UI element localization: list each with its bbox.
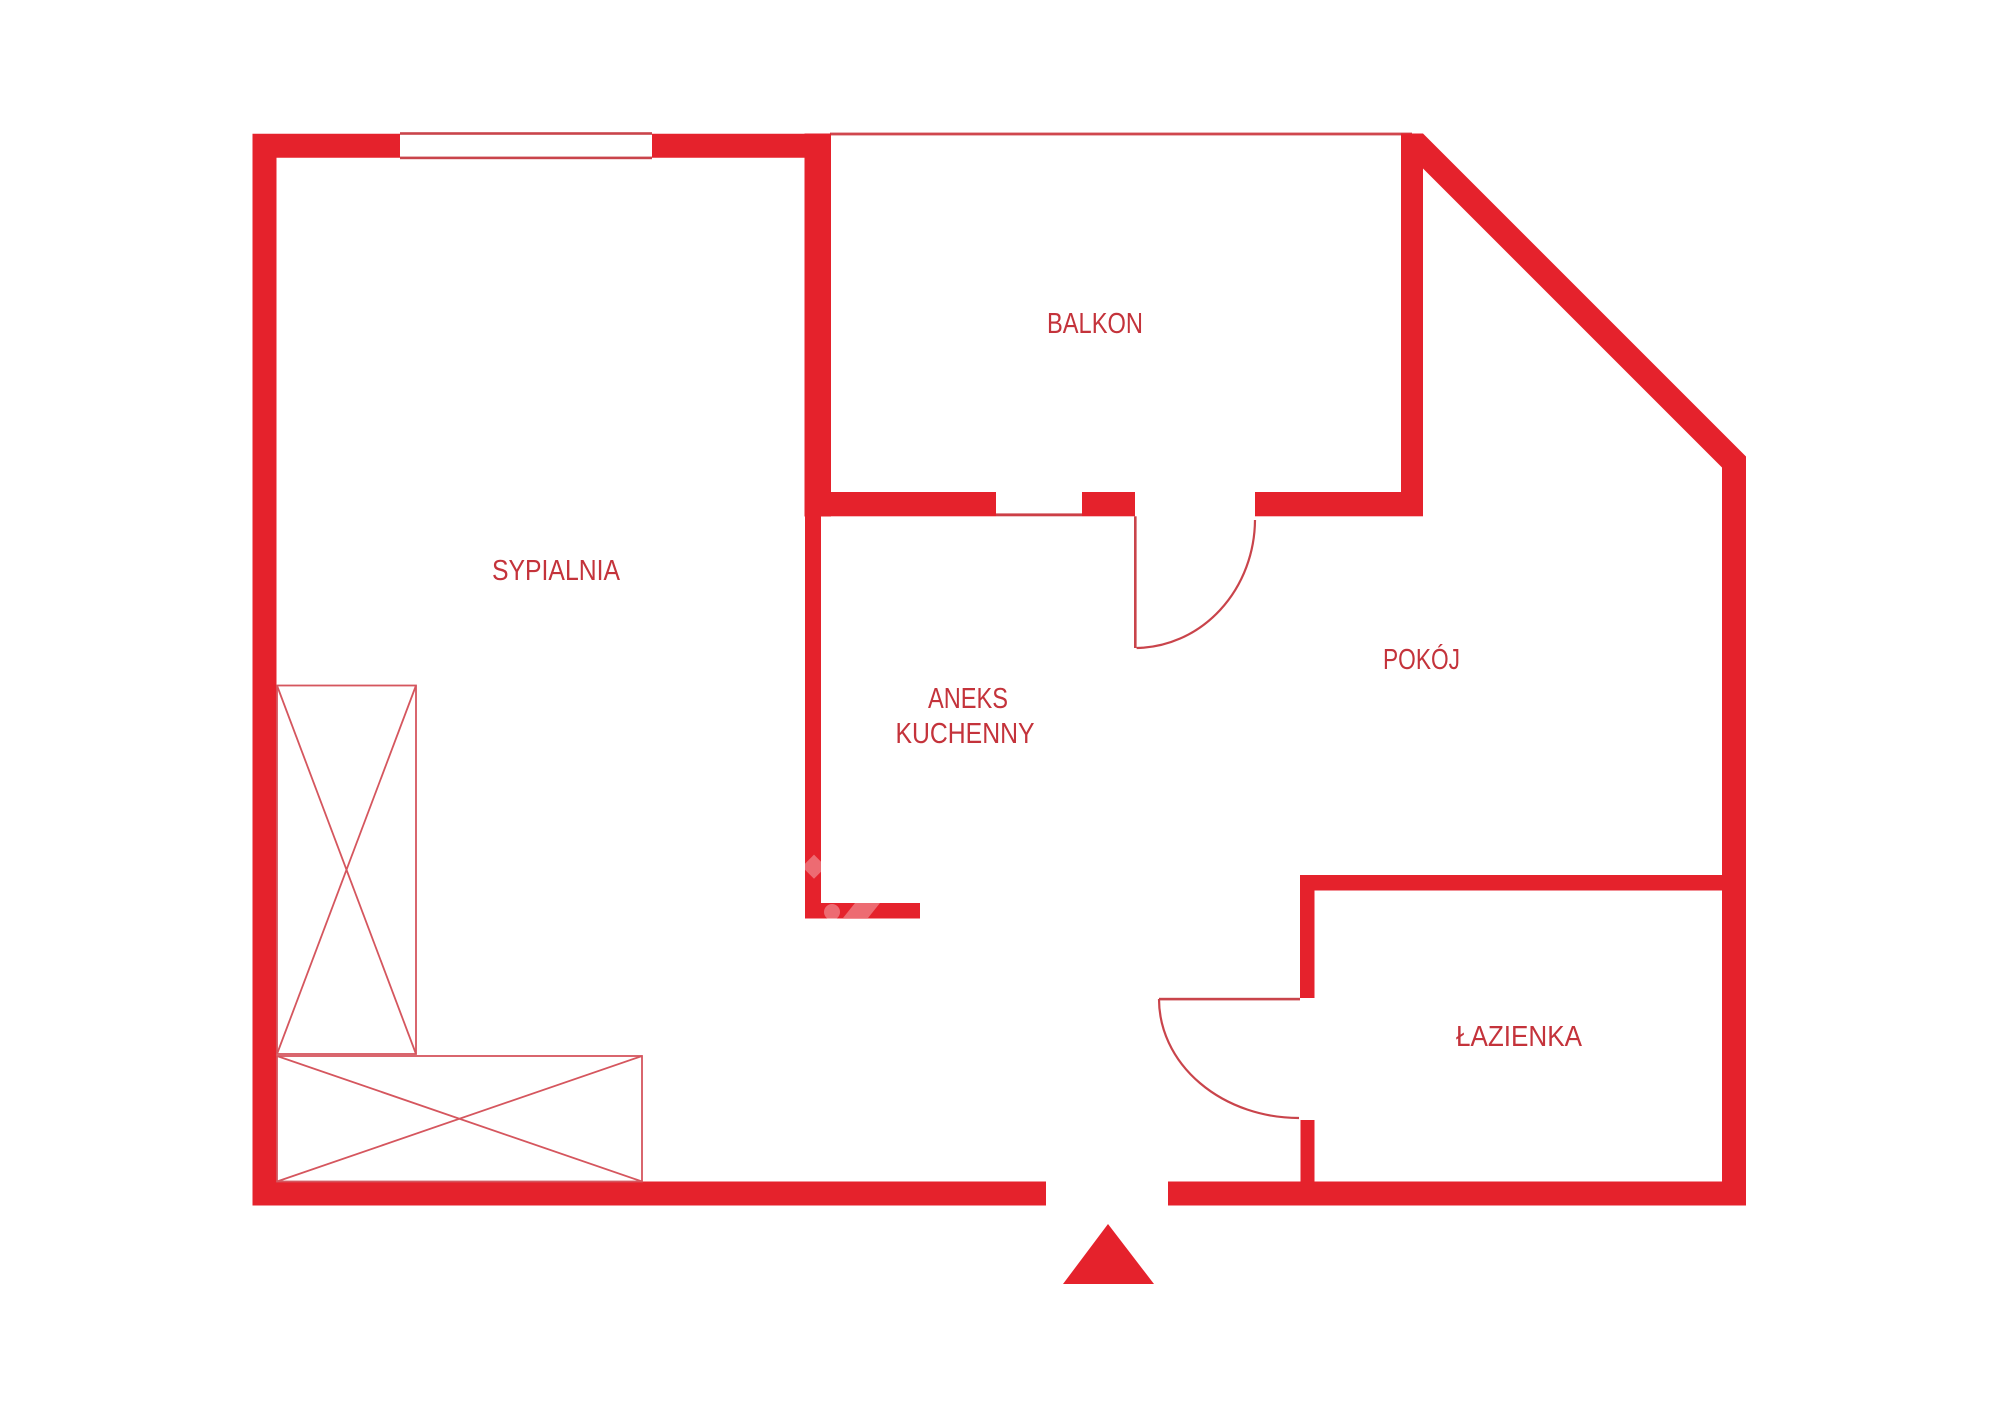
svg-text:SYPIALNIA: SYPIALNIA — [492, 555, 620, 587]
svg-text:BALKON: BALKON — [1047, 308, 1143, 340]
svg-text:ANEKS: ANEKS — [928, 683, 1008, 715]
svg-text:KUCHENNY: KUCHENNY — [896, 718, 1035, 750]
svg-text:ŁAZIENKA: ŁAZIENKA — [1456, 1021, 1582, 1053]
svg-text:POKÓJ: POKÓJ — [1383, 644, 1460, 676]
